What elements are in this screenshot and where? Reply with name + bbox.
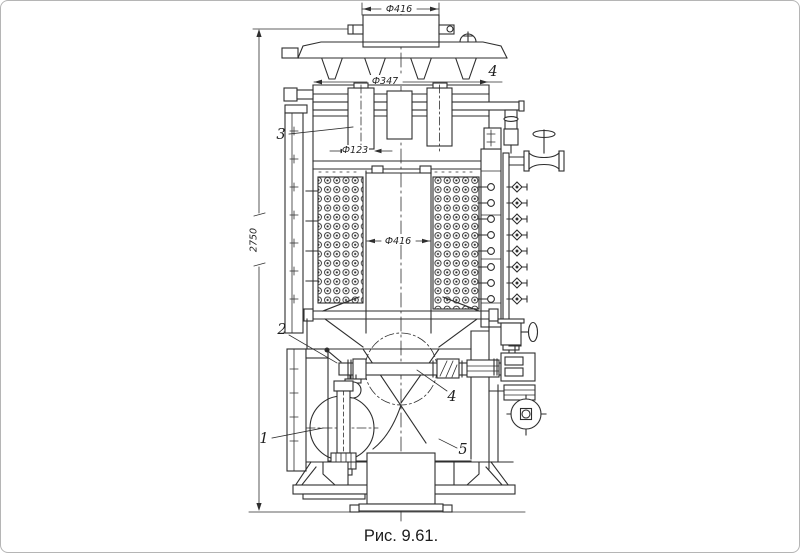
level-gauge-assembly xyxy=(478,128,527,333)
side-handwheel xyxy=(529,323,538,342)
left-nozzle xyxy=(284,88,297,101)
callout-2: 2 xyxy=(276,322,286,338)
callout-1: 1 xyxy=(259,431,268,447)
side-valve-lower xyxy=(498,319,538,357)
small-handwheel xyxy=(504,117,518,122)
overall-height-label: 2750 xyxy=(248,228,259,252)
callout-4-lower: 4 xyxy=(446,389,456,405)
nozzle-diameter-dimension: Ф123 xyxy=(330,145,392,156)
left-jacket-panel xyxy=(285,105,307,333)
lower-left-panel xyxy=(287,349,306,471)
nozzle-diameter-label: Ф123 xyxy=(342,145,368,156)
shell-diameter-dimension: Ф416 xyxy=(367,234,430,247)
tube-bank-right xyxy=(433,177,479,309)
figure-canvas: 2750 Ф416 Ф347 xyxy=(0,0,800,553)
bottom-duct xyxy=(367,453,435,504)
gauge-fittings xyxy=(507,182,527,304)
valve-lever xyxy=(328,351,341,362)
callout-5: 5 xyxy=(458,442,467,458)
center-channel xyxy=(366,166,431,333)
callout-4-upper: 4 xyxy=(487,64,497,80)
top-diameter-label: Ф416 xyxy=(386,4,412,15)
tube-bank-left xyxy=(306,177,363,303)
pump-unit xyxy=(489,346,546,461)
figure-caption: Рис. 9.61. xyxy=(364,527,438,545)
callout-3: 3 xyxy=(276,127,285,143)
shell-diameter-label: Ф416 xyxy=(385,236,411,247)
technical-drawing: 2750 Ф416 Ф347 xyxy=(1,1,799,552)
top-diameter-dimension: Ф416 xyxy=(362,3,439,15)
cross-pipe xyxy=(313,102,519,110)
base-skirt xyxy=(293,453,515,512)
junction-box xyxy=(484,128,501,149)
upper-pipe-center xyxy=(387,91,412,139)
